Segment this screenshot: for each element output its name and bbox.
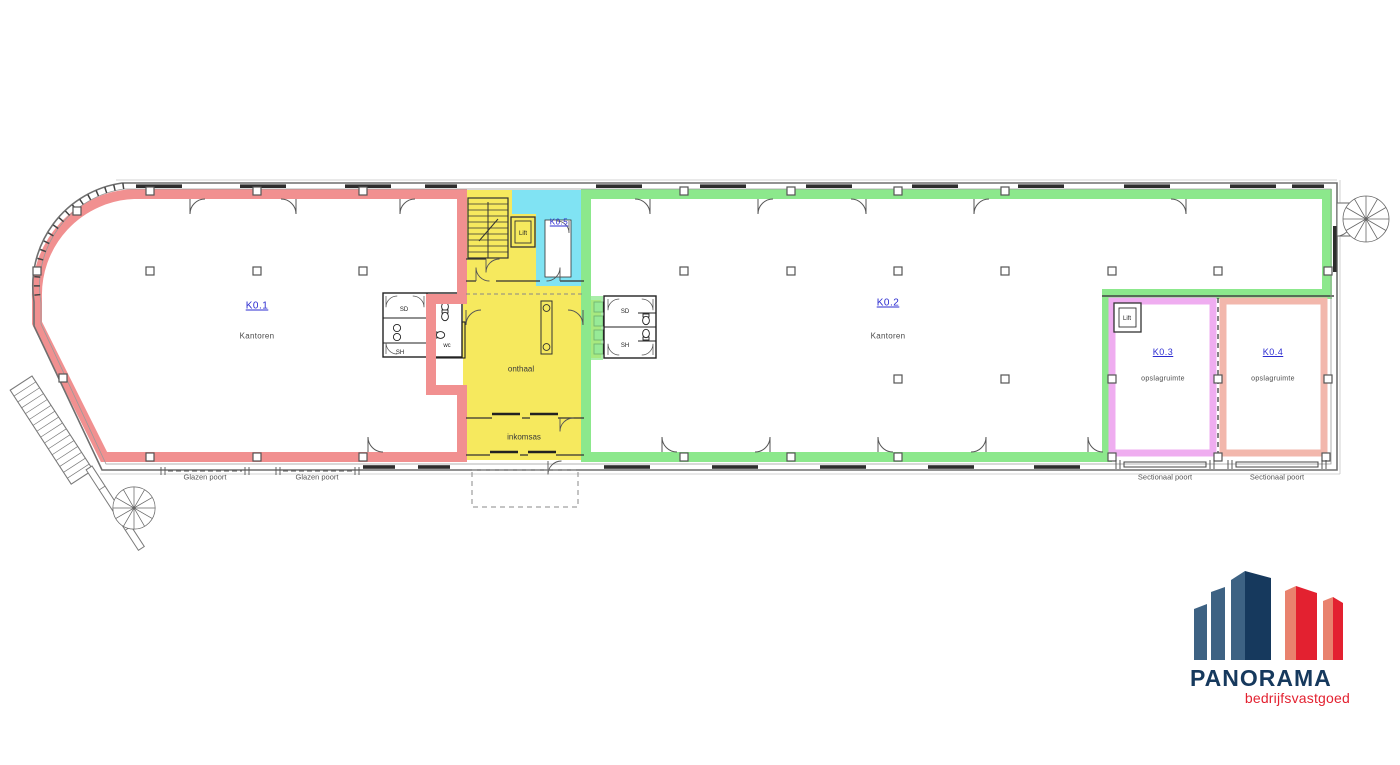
zone-sublabel-k02: Kantoren (871, 332, 906, 341)
perimeter-doors (190, 199, 1186, 452)
spiral-stair-top-right (1337, 196, 1389, 242)
windows (136, 184, 1337, 468)
floorplan-page: SD SH SD SH wc Lift Lift K0.1 Kantoren K… (0, 0, 1400, 765)
label-lift-core: Lift (519, 231, 527, 237)
zone-label-k01: K0.1 (246, 301, 269, 312)
door-label-sectionaal-1: Sectionaal poort (1138, 473, 1192, 482)
spiral-stair-bottom-left (113, 487, 155, 529)
panorama-logo: PANORAMA bedrijfsvastgoed (1190, 560, 1352, 710)
zone-sublabel-k03: opslagruimte (1141, 376, 1185, 383)
zone-sublabel-k04: opslagruimte (1251, 376, 1295, 383)
room-label-onthaal: onthaal (508, 365, 534, 374)
panorama-logo-name: PANORAMA (1190, 667, 1352, 690)
outer-boundary-lines (100, 180, 1340, 474)
door-label-sectionaal-2: Sectionaal poort (1250, 473, 1304, 482)
entrance-canopy (472, 470, 578, 507)
zone-band-k02-bulge (581, 296, 603, 360)
zone-label-k05: K0.5 (550, 218, 568, 227)
label-sh-right: SH (621, 343, 629, 349)
label-wc: wc (442, 343, 450, 349)
door-label-glazen-1: Glazen poort (184, 473, 227, 482)
zone-sublabel-k01: Kantoren (240, 332, 275, 341)
sanitary-block-right (604, 296, 656, 358)
room-label-inkomsas: inkomsas (507, 433, 541, 442)
label-sd-left: SD (400, 307, 409, 313)
label-lift-k03: Lift (1123, 316, 1131, 322)
panorama-logo-tagline: bedrijfsvastgoed (1190, 691, 1352, 705)
panorama-logo-buildings (1190, 560, 1350, 660)
zone-label-k04: K0.4 (1263, 347, 1284, 357)
zone-label-k02: K0.2 (877, 298, 900, 309)
zone-label-k03: K0.3 (1153, 347, 1174, 357)
label-sh-left: SH (396, 350, 404, 356)
door-label-glazen-2: Glazen poort (296, 473, 339, 482)
label-sd-right: SD (621, 309, 630, 315)
